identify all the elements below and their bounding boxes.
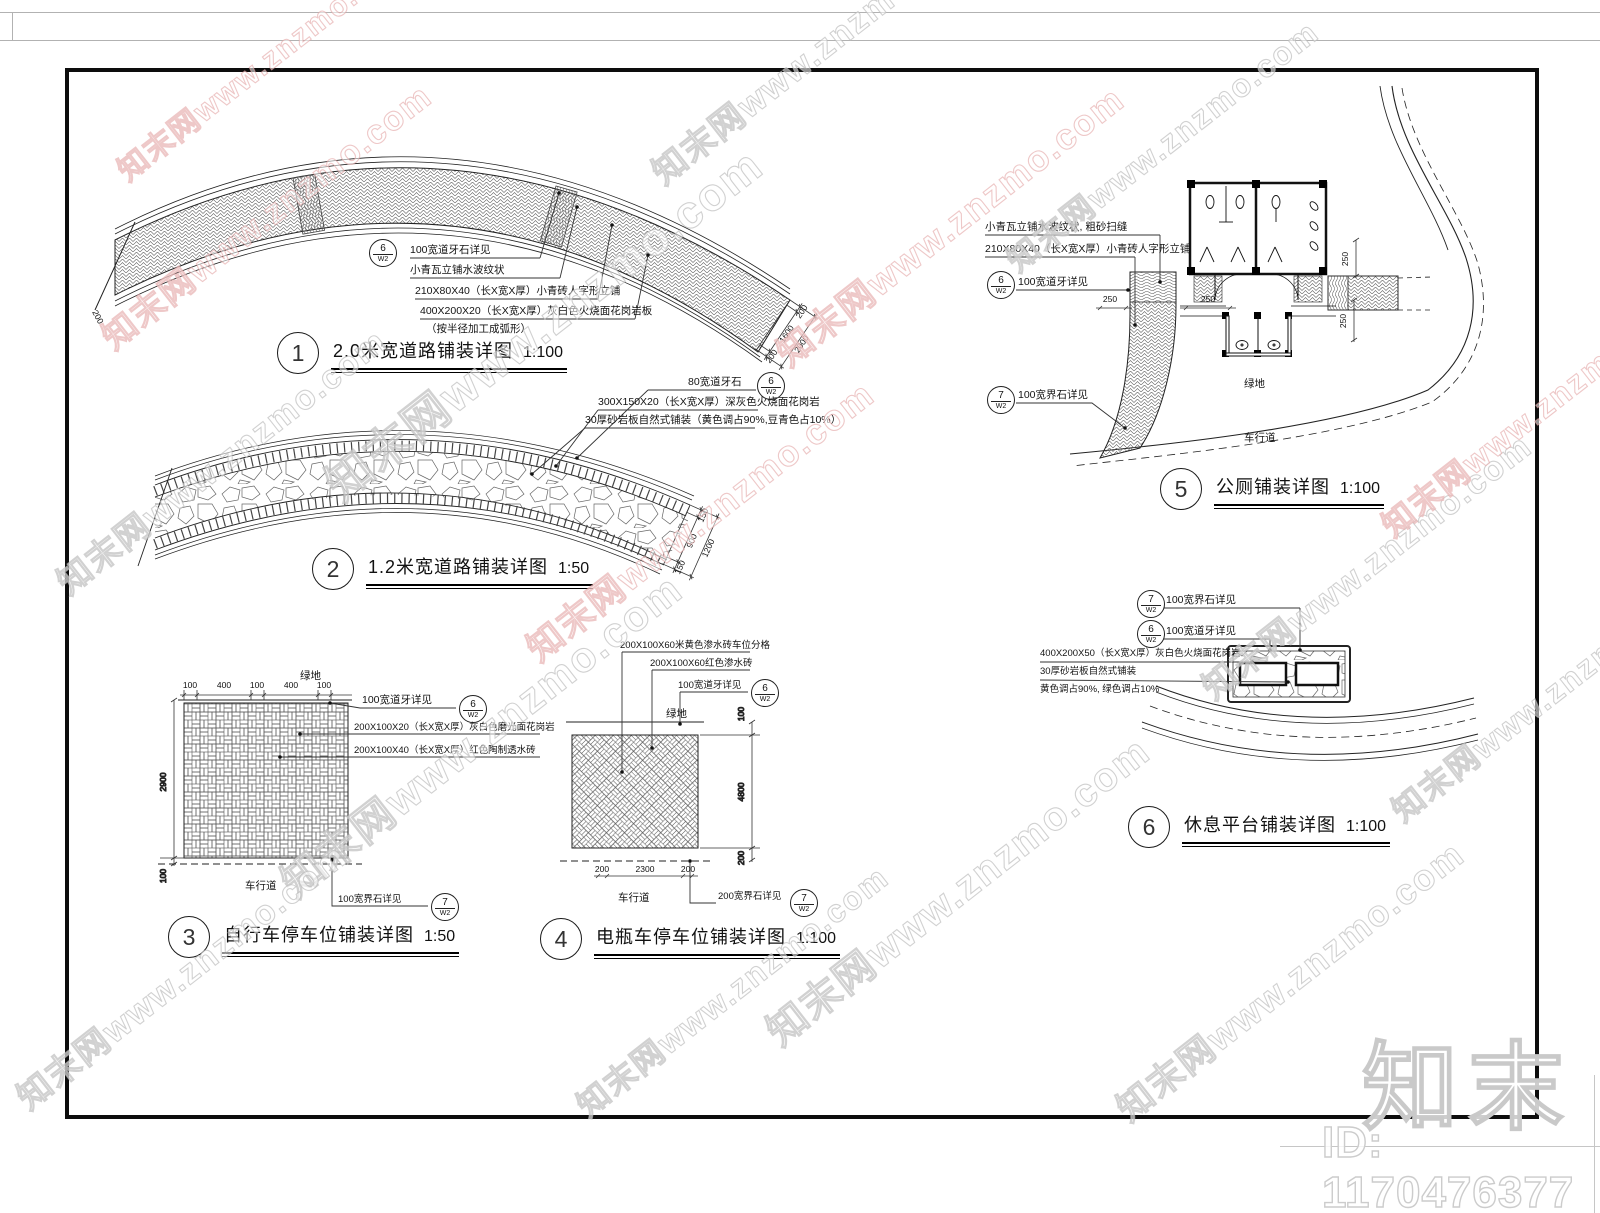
bubble-sheet: W2 [1146, 636, 1157, 645]
bubble-number: 6 [463, 699, 483, 711]
d4-callout-curb: 100宽道牙详见 [678, 680, 741, 692]
d2-callout-sandstone: 30厚砂岩板自然式铺装（黄色调占90%,豆青色占10%） [585, 414, 841, 426]
d1-callout-tile-wave: 小青瓦立铺水波纹状 [410, 264, 505, 276]
d4-road-label: 车行道 [618, 892, 650, 904]
d4-title-text: 电瓶车停车位铺装详图 [596, 923, 786, 949]
d5-dim-a: 250 [1103, 294, 1117, 304]
d5-callout-brick: 210X80X40（长X宽X厚）小青砖人字形立铺 [985, 243, 1190, 255]
d6-callout-sandstone: 30厚砂岩板自然式铺装 [1040, 666, 1136, 678]
d6-callout-border: 100宽界石详见 [1166, 594, 1236, 606]
d3-callout-border: 100宽界石详见 [338, 894, 401, 906]
d1-dim-total: 2000 [792, 333, 811, 354]
d5-callout-tile-wave: 小青瓦立铺水波纹状, 粗砂扫缝 [985, 221, 1127, 233]
d4-ref-bubble-curb: 6 W2 [751, 679, 779, 707]
d1-callout-granite: 400X200X20（长X宽X厚）灰白色火烧面花岗岩板 [420, 305, 652, 317]
d4-ref-bubble-border: 7 W2 [790, 889, 818, 917]
d6-callout-curb: 100宽道牙详见 [1166, 625, 1236, 637]
bubble-number: 7 [794, 893, 814, 905]
d6-title: 6 休息平台铺装详图1:100 [1128, 806, 1390, 848]
d3-dim-w1: 100 [183, 680, 197, 690]
d6-callout-color-note: 黄色调占90%, 绿色调占10% [1040, 684, 1159, 696]
d4-dim-b3: 200 [681, 864, 695, 874]
d5-ref-bubble-curb: 6 W2 [987, 271, 1015, 299]
bubble-number: 6 [761, 376, 781, 388]
d4-callout-divider: 200X100X60米黄色渗水砖车位分格 [620, 640, 770, 652]
d3-callout-curb: 100宽道牙详见 [362, 694, 432, 706]
d3-dim-w2: 400 [217, 680, 231, 690]
d5-title-scale: 1:100 [1340, 480, 1380, 498]
d3-callout-brick: 200X100X40（长X宽X厚）红色陶制透水砖 [354, 745, 536, 757]
d5-dim-b: 250 [1201, 294, 1215, 304]
d4-callout-border: 200宽界石详见 [718, 891, 781, 903]
d4-callout-brick: 200X100X60红色渗水砖 [650, 658, 752, 670]
d5-title-number: 5 [1160, 468, 1202, 510]
right-rule [1594, 1075, 1595, 1213]
d2-dim-total: 1200 [700, 537, 717, 559]
d3-title: 3 自行车停车位铺装详图1:50 [168, 916, 459, 958]
d1-title: 1 2.0米宽道路铺装详图1:100 [277, 332, 567, 374]
d6-callout-granite: 400X200X50（长X宽X厚）灰白色火烧面花岗岩 [1040, 648, 1241, 660]
d2-ref-bubble: 6 W2 [757, 372, 785, 400]
d5-dim-d: 250 [1338, 314, 1348, 328]
d1-dim-c: 200 [763, 347, 779, 365]
d6-ref-bubble-border: 7 W2 [1137, 590, 1165, 618]
d1-title-number: 1 [277, 332, 319, 374]
d2-title: 2 1.2米宽道路铺装详图1:50 [312, 548, 593, 590]
d2-title-scale: 1:50 [558, 560, 589, 578]
d5-title-text: 公厕铺装详图 [1216, 473, 1330, 499]
d2-dim-b: 900 [684, 532, 699, 549]
bubble-number: 6 [755, 683, 775, 695]
bubble-sheet: W2 [996, 402, 1007, 411]
d1-dim-a: 200 [793, 303, 809, 321]
bubble-number: 7 [435, 897, 455, 909]
cad-sheet: 200 1600 200 2000 200 [0, 0, 1600, 1213]
d3-dim-w4: 400 [284, 680, 298, 690]
d5-road-label: 车行道 [1244, 432, 1276, 444]
bubble-number: 7 [1141, 594, 1161, 606]
d3-ref-bubble-curb: 6 W2 [459, 695, 487, 723]
d4-dim-b1: 200 [595, 864, 609, 874]
bubble-sheet: W2 [760, 695, 771, 704]
d5-callout-curb: 100宽道牙详见 [1018, 276, 1088, 288]
d6-title-scale: 1:100 [1346, 818, 1386, 836]
d3-green-label: 绿地 [300, 670, 321, 682]
d5-green-label: 绿地 [1244, 378, 1265, 390]
d1-title-text: 2.0米宽道路铺装详图 [333, 337, 513, 363]
bubble-sheet: W2 [378, 255, 389, 264]
bubble-number: 6 [373, 243, 393, 255]
d2-dim-a: 150 [696, 506, 711, 523]
drawing-linework: 200 1600 200 2000 200 [0, 0, 1600, 1213]
d4-title-scale: 1:100 [796, 930, 836, 948]
d6-ref-bubble-curb: 6 W2 [1137, 620, 1165, 648]
d4-dim-mid: 4800 [736, 782, 746, 801]
d1-dim-b: 1600 [777, 323, 796, 344]
d5-callout-border: 100宽界石详见 [1018, 389, 1088, 401]
d2-callout-curb: 80宽道牙石 [688, 376, 742, 388]
d4-title-number: 4 [540, 918, 582, 960]
d3-dim-w3: 100 [250, 680, 264, 690]
d4-dim-bot: 200 [736, 851, 746, 865]
bubble-sheet: W2 [996, 287, 1007, 296]
d3-title-text: 自行车停车位铺装详图 [224, 921, 414, 947]
d1-callout-curb: 100宽道牙石详见 [410, 244, 491, 256]
d2-title-number: 2 [312, 548, 354, 590]
d1-ref-bubble: 6 W2 [369, 239, 397, 267]
d5-title: 5 公厕铺装详图1:100 [1160, 468, 1384, 510]
bubble-sheet: W2 [1146, 606, 1157, 615]
d6-title-text: 休息平台铺装详图 [1184, 811, 1336, 837]
bubble-number: 6 [1141, 624, 1161, 636]
d3-road-label: 车行道 [245, 880, 277, 892]
bubble-sheet: W2 [799, 905, 810, 914]
d1-callout-brick: 210X80X40（长X宽X厚）小青砖人字形立铺 [415, 285, 620, 297]
d5-ref-bubble-border: 7 W2 [987, 386, 1015, 414]
d1-dim-left: 200 [90, 308, 106, 325]
d3-callout-granite: 200X100X20（长X宽X厚）灰白色磨光面花岗岩 [354, 722, 555, 734]
d3-title-scale: 1:50 [424, 928, 455, 946]
d2-dim-c: 150 [672, 558, 687, 575]
d3-dim-h: 2900 [158, 772, 168, 791]
d5-dim-c: 250 [1340, 252, 1350, 266]
bubble-number: 7 [991, 390, 1011, 402]
bubble-sheet: W2 [468, 711, 479, 720]
d2-callout-granite: 300X150X20（长X宽X厚）深灰色火烧面花岗岩 [598, 396, 820, 408]
d1-title-scale: 1:100 [523, 344, 563, 362]
d2-title-text: 1.2米宽道路铺装详图 [368, 553, 548, 579]
d3-dim-h2: 100 [158, 869, 168, 883]
d4-green-label: 绿地 [666, 708, 687, 720]
d4-dim-b2: 2300 [636, 864, 655, 874]
d3-title-number: 3 [168, 916, 210, 958]
d6-title-number: 6 [1128, 806, 1170, 848]
id-rule [1280, 1146, 1600, 1147]
d4-dim-top: 100 [736, 707, 746, 721]
bubble-number: 6 [991, 275, 1011, 287]
bubble-sheet: W2 [766, 388, 777, 397]
d4-title: 4 电瓶车停车位铺装详图1:100 [540, 918, 840, 960]
